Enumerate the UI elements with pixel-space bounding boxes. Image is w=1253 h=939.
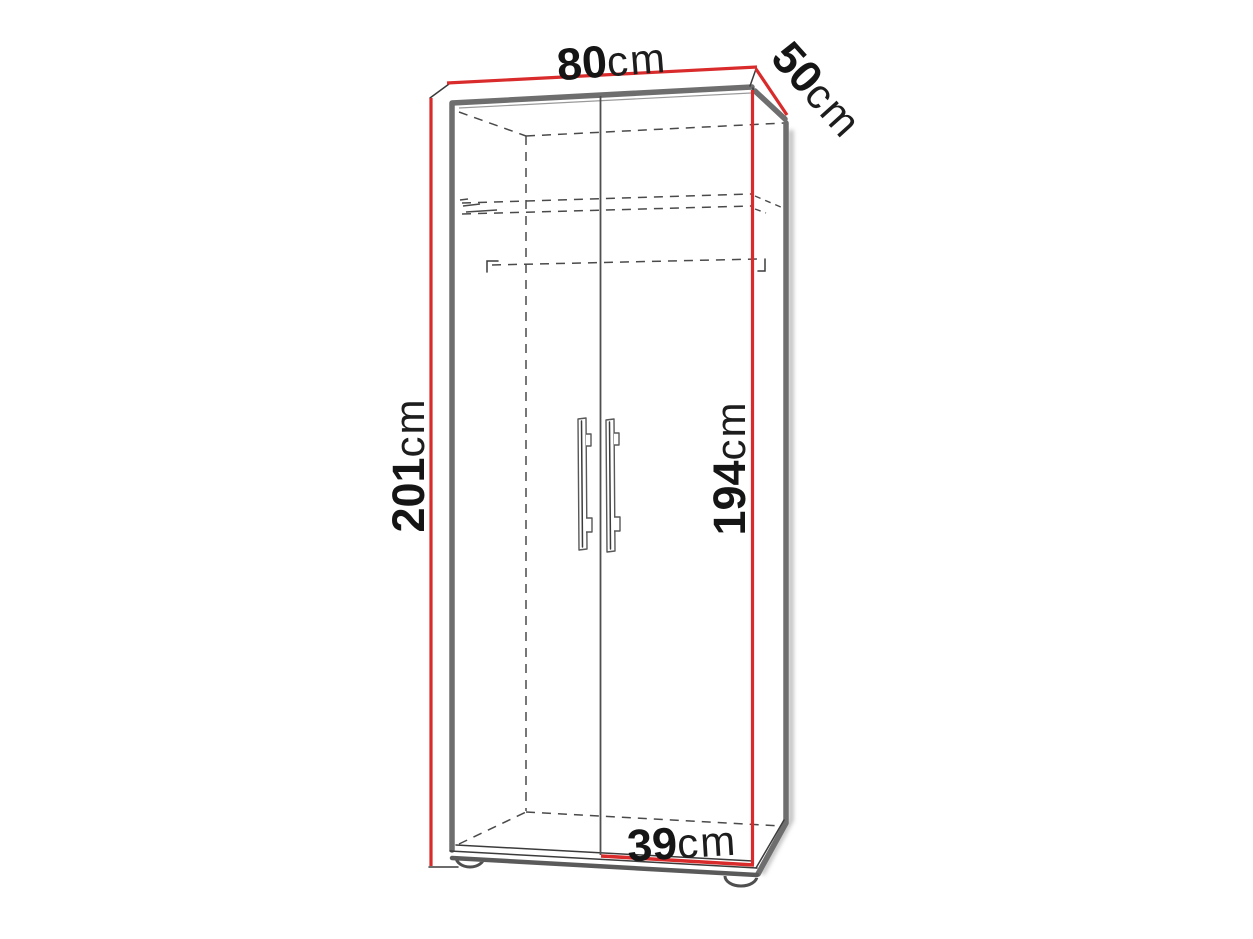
handle-bottom-mount: [614, 517, 620, 531]
handle-top-mount: [586, 434, 591, 446]
handle-bar-inner-line: [610, 422, 611, 549]
handle-top-mount: [614, 433, 619, 445]
width-label: 80cm: [555, 31, 669, 90]
door-height-label: 194cm: [704, 400, 755, 535]
wardrobe-dimension-diagram: 80cm 50cm 201cm 194cm 39cm: [0, 0, 1253, 939]
handle-bottom-mount: [586, 518, 592, 532]
door-width-label: 39cm: [626, 814, 739, 872]
height-label: 201cm: [383, 397, 434, 532]
wardrobe-diagram-page: 80cm 50cm 201cm 194cm 39cm: [0, 0, 1253, 939]
handle-bar-inner-line: [582, 421, 583, 547]
height-top-tick: [430, 84, 449, 98]
right-side-panel-face: [753, 88, 786, 872]
